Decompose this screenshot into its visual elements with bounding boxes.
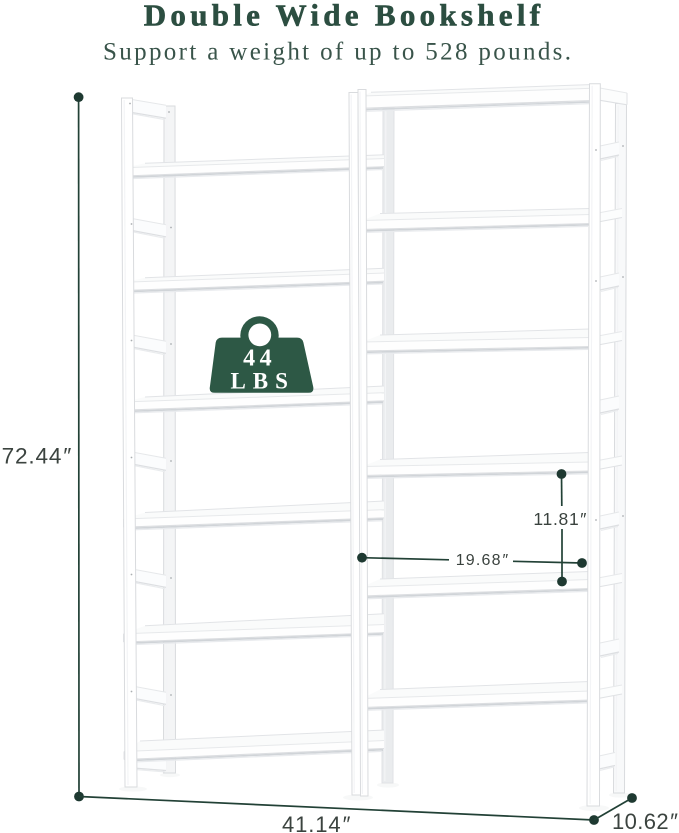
svg-text:19.68″: 19.68″	[456, 552, 509, 569]
svg-text:LBS: LBS	[230, 369, 294, 394]
svg-text:10.62″: 10.62″	[612, 809, 678, 833]
svg-text:72.44″: 72.44″	[2, 443, 72, 468]
svg-text:Support a weight of up to 528: Support a weight of up to 528 pounds.	[103, 39, 571, 66]
svg-text:41.14″: 41.14″	[282, 812, 351, 833]
svg-text:11.81″: 11.81″	[533, 509, 586, 529]
